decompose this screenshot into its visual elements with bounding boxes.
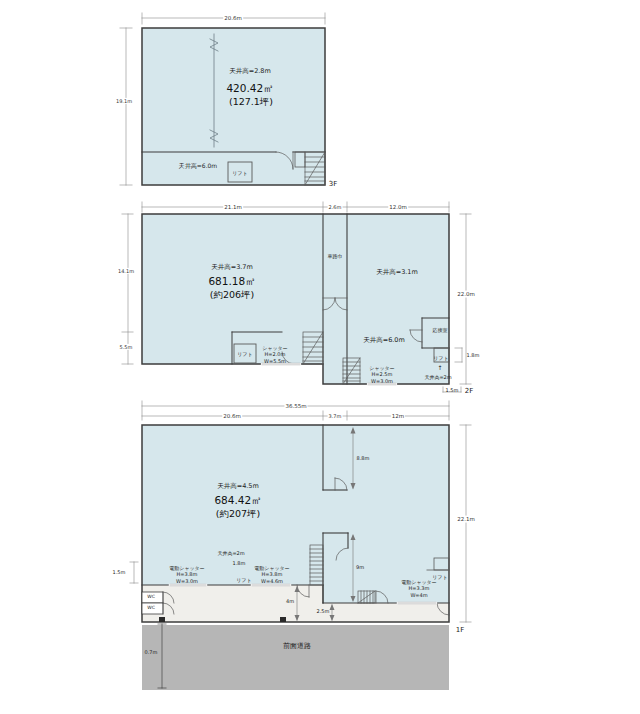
ceiling-3f-low: 天井高=6.0m — [179, 162, 217, 170]
ceiling-2f-main: 天井高=3.7m — [211, 263, 253, 271]
dim-2f-lift: 1.8m — [467, 352, 480, 358]
shutter-label-1f-left: 電動シャッター H=3.8m W=3.0m — [169, 565, 204, 584]
area-2f-tsubo: (約206坪) — [210, 289, 255, 301]
shutter-label-2f-right: シャッター H=2.5m W=3.0m — [369, 365, 394, 384]
dim-1f-right: 22.1m — [456, 516, 476, 523]
dim-3f-top: 20.6m — [223, 15, 243, 22]
dim-1f-left: 1.5m — [113, 569, 126, 575]
dim-2f-bottom: 1.5m — [446, 387, 459, 393]
floorplan-canvas: 20.6m 19.1m 天井高=2.8m 420.42㎡ (127.1坪) 天井… — [0, 0, 640, 714]
dim-2f-top-mid: 2.6m — [328, 204, 343, 210]
dim-1f-ramp: 8.8m — [357, 455, 370, 461]
dim-1f-top-right: 12m — [391, 413, 405, 420]
dim-1f-top-total: 36.55m — [284, 403, 307, 410]
dim-2f-left-upper: 14.1m — [117, 268, 135, 274]
dim-2f-top-right: 12.0m — [388, 204, 408, 211]
ramp-label-2f: 車路巾 — [328, 253, 343, 259]
lift-label-2f-right: リフト — [433, 355, 448, 361]
ceiling-1f-main: 天井高=4.5m — [217, 482, 259, 490]
dim-2f-right: 22.0m — [456, 291, 476, 298]
lift-label-2f-left: リフト — [237, 351, 252, 357]
ceiling-2f-right: 天井高=3.1m — [376, 268, 418, 276]
shutter-label-2f-left: シャッター H=2.0m W=5.5m — [262, 345, 287, 364]
road-label: 前面道路 — [283, 642, 311, 651]
dim-2f-left-lower: 5.5m — [119, 344, 134, 350]
dim-1f-lift-opening: 1.8m — [233, 560, 246, 566]
area-3f-sqm: 420.42㎡ — [226, 82, 273, 95]
dim-1f-top-mid: 3.7m — [328, 413, 343, 419]
dim-1f-entrance-right: 2.5m — [317, 608, 330, 614]
dim-1f-shaft: 9m — [356, 564, 364, 570]
ceiling-2f-right-low: 天井高=6.0m — [363, 336, 405, 344]
wc-label-upper: WC — [147, 594, 155, 600]
label-layer: 20.6m 19.1m 天井高=2.8m 420.42㎡ (127.1坪) 天井… — [0, 0, 640, 714]
lift-arrow-icon: ↑ — [437, 364, 442, 372]
dim-1f-top-left: 20.6m — [222, 413, 242, 420]
ceiling-3f-main: 天井高=2.8m — [229, 67, 271, 75]
dim-3f-left: 19.1m — [115, 98, 133, 104]
area-3f-tsubo: (127.1坪) — [229, 96, 273, 108]
lift-label-3f: リフト — [232, 170, 247, 176]
area-1f-sqm: 684.42㎡ — [214, 494, 261, 507]
ceiling-2f-lift: 天井高=2m — [424, 374, 451, 380]
dim-1f-entrance-left: 4m — [286, 598, 294, 604]
reception-label: 応接室 — [433, 327, 448, 333]
floor-tag-1f: 1F — [456, 626, 464, 635]
shutter-label-1f-mid: 電動シャッター H=3.8m W=4.6m — [254, 565, 289, 584]
floor-tag-3f: 3F — [329, 180, 337, 189]
shutter-label-1f-right: 電動シャッター H=3.3m W=4m — [401, 579, 436, 598]
ceiling-1f-lift: 天井高=2m — [217, 550, 244, 556]
floor-tag-2f: 2F — [465, 387, 473, 396]
lift-label-1f-right: リフト — [432, 574, 447, 580]
dim-2f-top-left: 21.1m — [223, 204, 243, 211]
lift-label-1f-center: リフト — [236, 577, 251, 583]
area-1f-tsubo: (約207坪) — [216, 508, 261, 520]
dim-1f-road: 0.7m — [145, 649, 158, 655]
area-2f-sqm: 681.18㎡ — [208, 275, 255, 288]
wc-label-lower: WC — [147, 605, 155, 611]
